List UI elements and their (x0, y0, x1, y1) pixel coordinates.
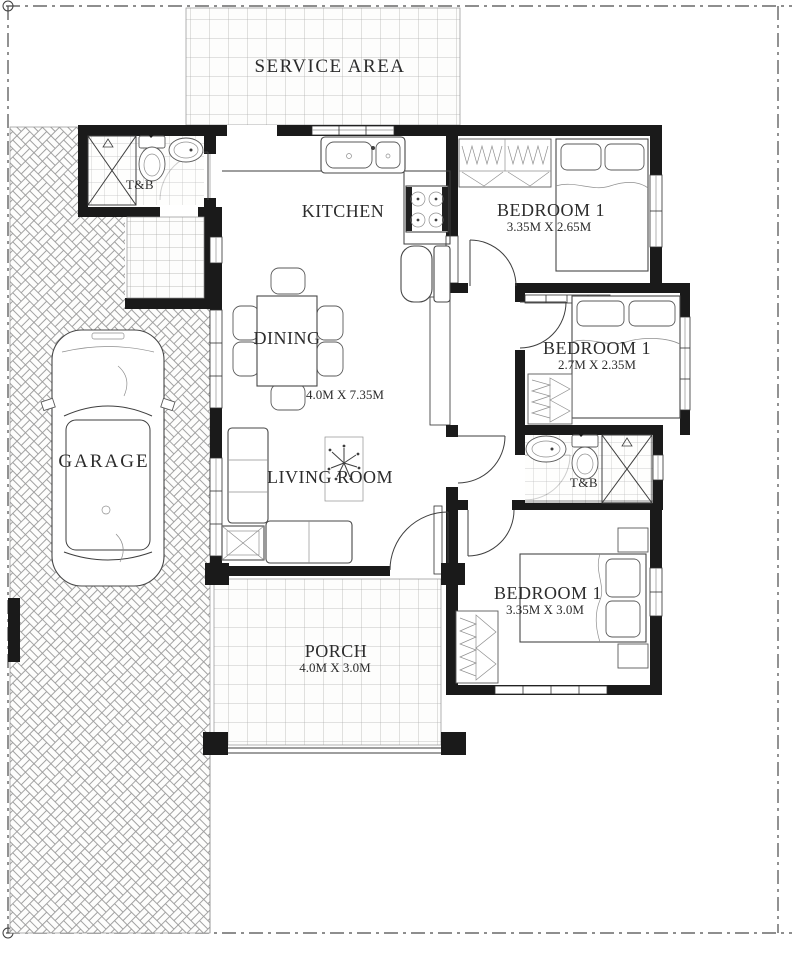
kitchen-label: KITCHEN (302, 201, 385, 221)
wall-segment (78, 125, 88, 217)
door-arc (470, 240, 516, 286)
porch-column (441, 732, 466, 755)
window (210, 310, 222, 408)
living-room-label: LIVING ROOM (267, 467, 393, 487)
floor-plan: SERVICE AREA KITCHEN T&B BEDROOM 1 3.35M… (0, 0, 800, 962)
wall-segment (204, 136, 216, 154)
window (495, 686, 607, 694)
stove-icon (406, 186, 448, 232)
kitchen-sink-icon (321, 137, 405, 173)
bedroom-middle-label: BEDROOM 1 (543, 338, 651, 358)
closet-icon (459, 139, 551, 187)
bedroom-top-label: BEDROOM 1 (497, 200, 605, 220)
driveway-paving (10, 215, 125, 300)
chair-icon (271, 384, 305, 410)
wall-segment (650, 616, 662, 695)
side-table-icon (222, 526, 264, 560)
window (680, 317, 690, 410)
wall-segment (650, 510, 662, 568)
tb-lower-label: T&B (570, 475, 598, 490)
wall-segment (210, 408, 222, 458)
window (650, 568, 662, 616)
toilet-icon (572, 429, 598, 479)
nightstand-icon (618, 644, 648, 668)
door-arc (468, 510, 514, 556)
window (434, 506, 442, 574)
nightstand-icon (618, 528, 648, 552)
sink-icon (526, 436, 566, 462)
floor-plan-drawing: SERVICE AREA KITCHEN T&B BEDROOM 1 3.35M… (0, 0, 800, 962)
pillow (606, 601, 640, 637)
wall-segment (650, 125, 662, 175)
garage-label: GARAGE (58, 451, 149, 472)
toilet-icon (139, 130, 165, 181)
wall-segment (515, 425, 663, 435)
bedroom-bottom-dims: 3.35M X 3.0M (506, 602, 584, 617)
porch-dims: 4.0M X 3.0M (299, 660, 371, 675)
wall-segment (446, 425, 458, 437)
closet-icon (528, 374, 572, 424)
wall-segment (515, 425, 525, 455)
chair-icon (271, 268, 305, 294)
wall-segment (78, 207, 160, 217)
wall-segment (446, 500, 468, 510)
chair-icon (317, 342, 343, 376)
wall-segment (125, 298, 216, 309)
porch-column (205, 563, 229, 585)
toilet-bath-upper (88, 130, 204, 205)
tb-upper-label: T&B (126, 177, 154, 192)
half-wall (430, 297, 450, 425)
pillow (629, 301, 675, 326)
wall-segment (515, 283, 690, 293)
wall-segment (680, 410, 690, 435)
wall-segment (653, 425, 663, 455)
pillow (605, 144, 644, 170)
window (210, 237, 222, 263)
wall-segment (210, 566, 390, 576)
pillow (561, 144, 601, 170)
porch-label: PORCH (305, 641, 368, 661)
bedroom-middle-dims: 2.7M X 2.35M (558, 357, 636, 372)
closet-icon (456, 611, 498, 683)
window (653, 455, 663, 480)
dining-dims: 4.0M X 7.35M (306, 387, 384, 402)
living-room (222, 428, 363, 563)
wall-segment (446, 487, 458, 500)
laundry-tiles (127, 217, 204, 298)
toilet-bath-lower (525, 429, 653, 503)
porch-column (203, 732, 228, 755)
gate-post (8, 598, 20, 662)
bedroom-top-dims: 3.35M X 2.65M (507, 219, 592, 234)
bedroom-bottom-label: BEDROOM 1 (494, 583, 602, 603)
service-area-label: SERVICE AREA (254, 56, 405, 77)
window (312, 126, 394, 135)
wall-segment (515, 350, 525, 425)
dining-label: DINING (254, 328, 321, 348)
door-opening (227, 125, 277, 136)
pillow (606, 559, 640, 597)
driveway-paving (10, 127, 78, 215)
pillow (577, 301, 624, 326)
sink-icon (169, 138, 203, 162)
fridge-icon (401, 246, 450, 302)
wall-segment (210, 263, 222, 310)
door-arc (458, 436, 505, 483)
chair-icon (317, 306, 343, 340)
wall-segment (515, 293, 525, 302)
window (210, 458, 222, 556)
window (650, 175, 662, 247)
porch-column (441, 563, 465, 585)
laundry-area (127, 217, 204, 298)
wall-segment (680, 285, 690, 317)
wall-segment (210, 207, 222, 237)
